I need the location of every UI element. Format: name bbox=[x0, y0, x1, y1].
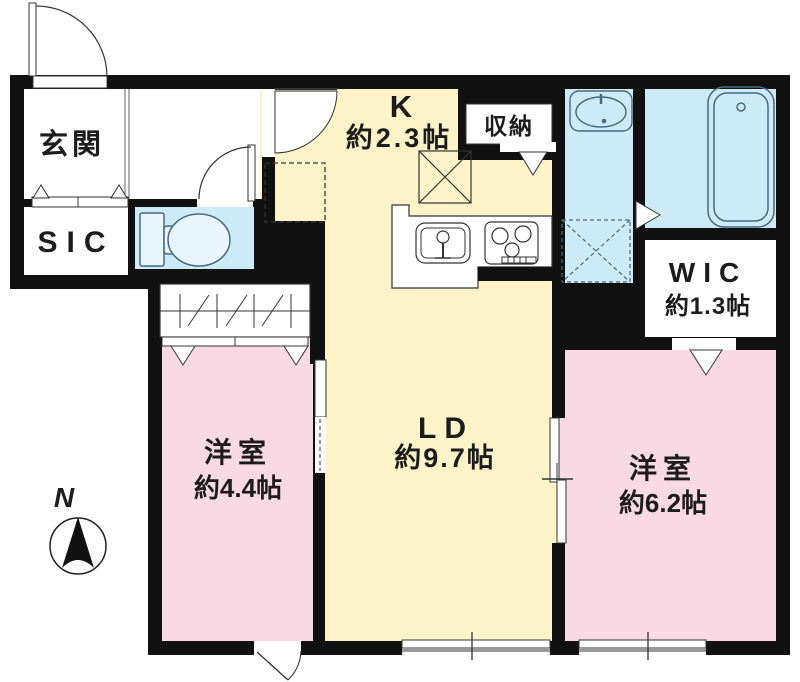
genkan-label: 玄関 bbox=[39, 127, 105, 161]
kitchen-counter-icon bbox=[392, 205, 552, 288]
compass-icon: N bbox=[50, 482, 106, 574]
gas-stove-icon bbox=[485, 222, 538, 264]
living-dining-label: LD bbox=[418, 412, 474, 445]
sliding-door-west-icon bbox=[315, 360, 326, 473]
storage-label: 収納 bbox=[484, 113, 534, 139]
washroom-floor bbox=[560, 85, 638, 285]
bathroom-floor bbox=[638, 85, 783, 235]
kitchen-label: K bbox=[390, 89, 413, 124]
sic-label: SIC bbox=[37, 226, 114, 259]
sink-icon bbox=[416, 223, 470, 263]
compass-north-label: N bbox=[54, 482, 75, 513]
toilet-icon bbox=[140, 213, 230, 266]
living-dining-size: 約9.7帖 bbox=[394, 442, 496, 473]
bedroom-west-size: 約4.4帖 bbox=[194, 473, 282, 503]
room-fills bbox=[128, 85, 783, 645]
wic-label: WIC bbox=[669, 257, 747, 288]
floor-plan-drawing: 収納 bbox=[0, 0, 800, 682]
balcony-door-icon bbox=[257, 651, 301, 680]
genkan-step-line bbox=[125, 89, 129, 199]
bedroom-east-label: 洋室 bbox=[629, 452, 697, 484]
bedroom-east-size: 約6.2帖 bbox=[619, 488, 707, 518]
kitchen-size: 約2.3帖 bbox=[346, 122, 453, 153]
toilet-door-icon bbox=[199, 145, 255, 201]
living-dining-floor bbox=[318, 85, 558, 645]
bedroom-west-label: 洋室 bbox=[204, 436, 272, 468]
wic-size: 約1.3帖 bbox=[665, 292, 751, 320]
floor-plan: 収納 bbox=[0, 0, 800, 682]
sic-door-icon bbox=[32, 185, 128, 207]
